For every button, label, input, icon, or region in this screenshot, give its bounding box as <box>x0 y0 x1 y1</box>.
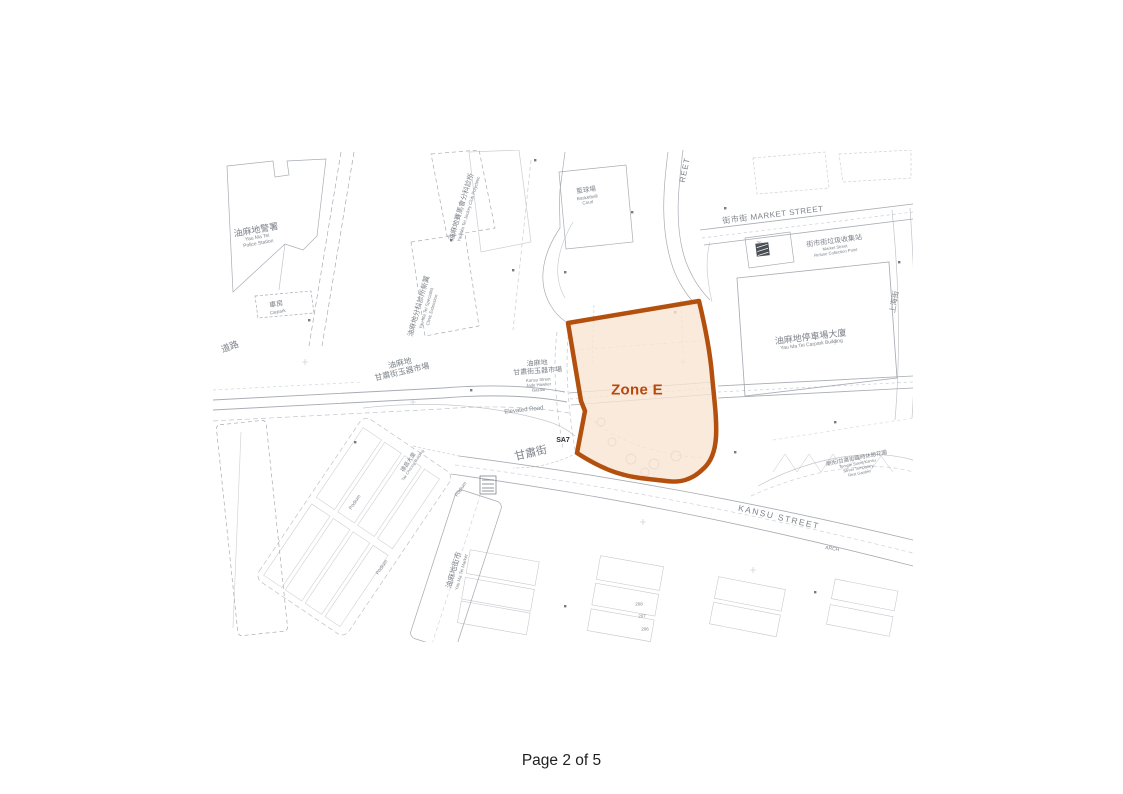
refuse-hatch-square <box>755 242 769 256</box>
map-linework <box>213 150 913 642</box>
page-number: Page 2 of 5 <box>0 752 1123 770</box>
site-map: 油麻地警署Yau Ma TeiPolice Station車房Carpark道路… <box>213 150 913 642</box>
document-page: 油麻地警署Yau Ma TeiPolice Station車房Carpark道路… <box>0 0 1123 794</box>
zone-e-label: Zone E <box>611 382 663 399</box>
